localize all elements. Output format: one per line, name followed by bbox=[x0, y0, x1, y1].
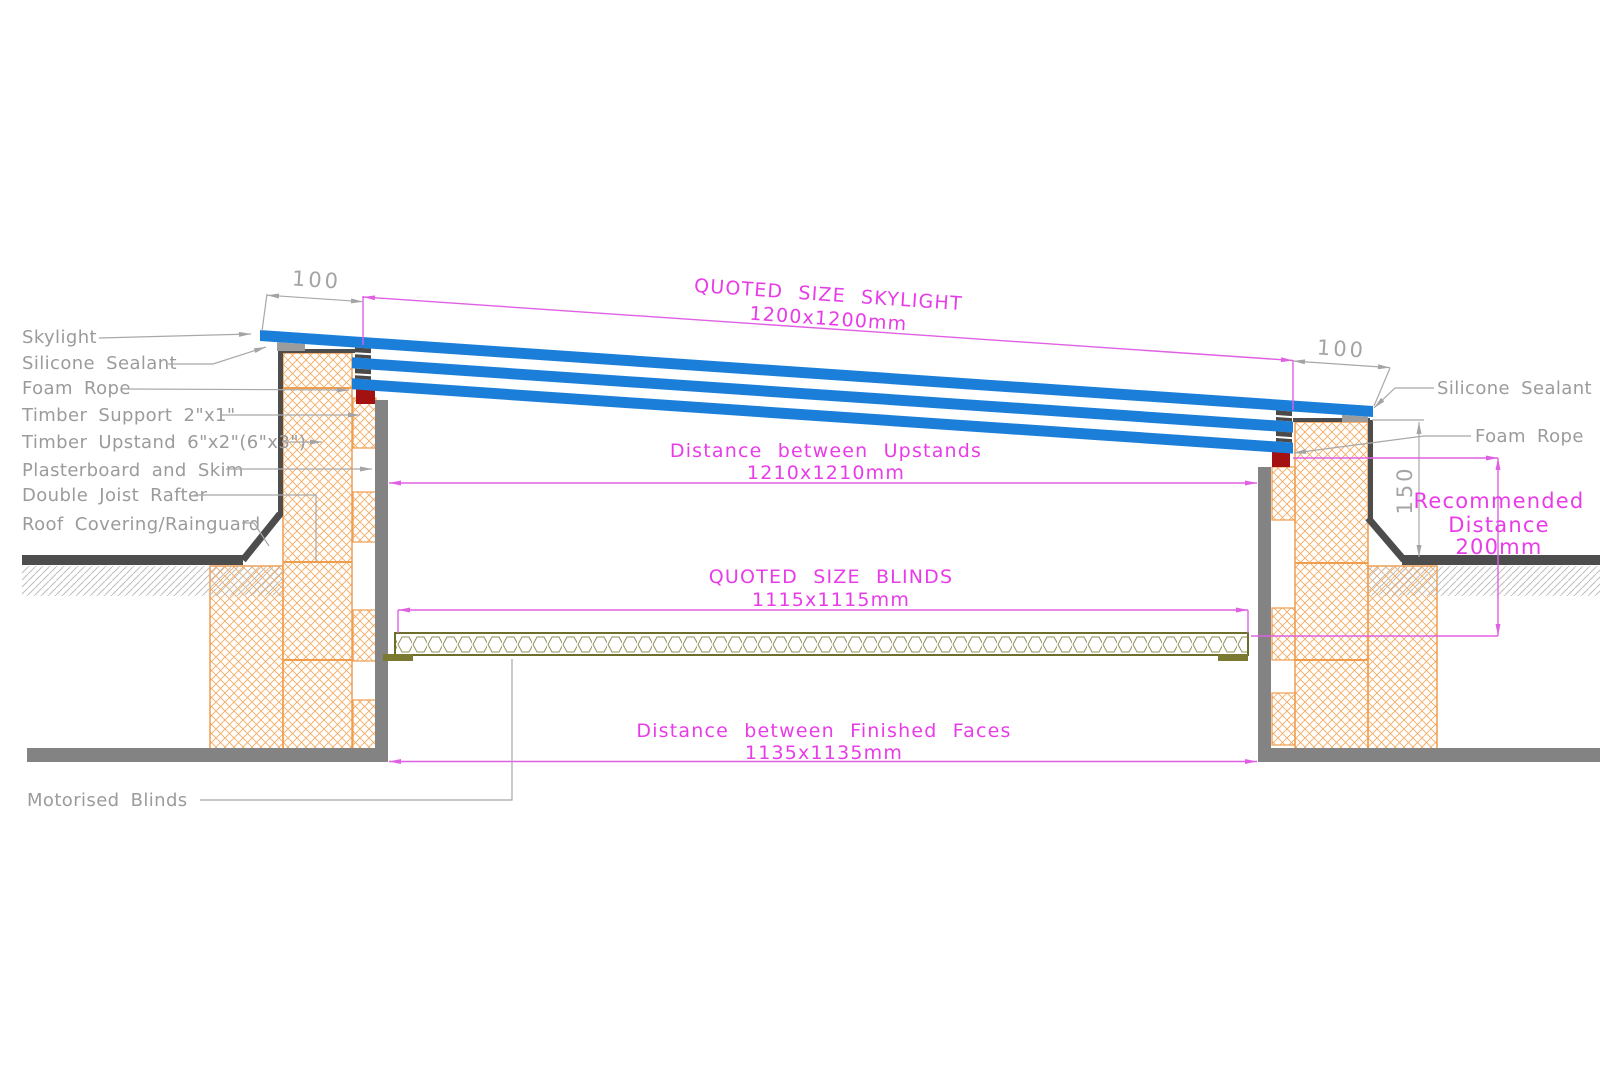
left-roof-deck-hatch bbox=[22, 566, 283, 596]
dim-recommended-line1: Recommended bbox=[1414, 489, 1585, 513]
label-plasterboard: Plasterboard and Skim bbox=[22, 460, 244, 481]
blinds-right-bracket bbox=[1218, 654, 1248, 661]
right-roof-covering-slope bbox=[1368, 518, 1404, 560]
right-roof-deck-hatch bbox=[1368, 566, 1600, 596]
skylight-section-drawing: QUOTED SIZE SKYLIGHT 1200x1200mm 100 100… bbox=[0, 0, 1600, 1068]
left-ceiling bbox=[27, 748, 388, 762]
dim-line bbox=[267, 295, 363, 302]
label-roof-covering: Roof Covering/Rainguard bbox=[22, 514, 261, 535]
dim-line bbox=[1293, 361, 1390, 368]
label-double-joist: Double Joist Rafter bbox=[22, 485, 207, 506]
spacer-detail bbox=[355, 353, 371, 354]
left-plasterboard bbox=[375, 400, 388, 750]
leader-skylight bbox=[99, 334, 251, 338]
blinds-left-bracket bbox=[383, 654, 413, 661]
spacer-detail bbox=[1276, 437, 1292, 438]
dim-blinds-title: QUOTED SIZE BLINDS bbox=[709, 566, 954, 588]
dim-distance-between-upstands: Distance between Upstands 1210x1210mm bbox=[389, 440, 1257, 484]
dim-upstands-title: Distance between Upstands bbox=[670, 440, 982, 462]
dim-recommended-line3: 200mm bbox=[1456, 535, 1543, 559]
dim-distance-finished-faces: Distance between Finished Faces 1135x113… bbox=[389, 720, 1257, 764]
spacer-detail bbox=[1276, 416, 1292, 417]
dim-overhang-left-value: 100 bbox=[291, 266, 342, 293]
dim-upstands-size: 1210x1210mm bbox=[747, 462, 905, 484]
motorised-blinds-unit bbox=[383, 633, 1248, 661]
blinds-honeycomb bbox=[395, 633, 1248, 655]
label-timber-upstand: Timber Upstand 6"x2"(6"x3") bbox=[21, 432, 306, 453]
dim-overhang-left: 100 bbox=[262, 266, 363, 331]
left-timber-support-block bbox=[353, 398, 376, 448]
label-silicone-sealant-right: Silicone Sealant bbox=[1437, 378, 1592, 399]
label-silicone-sealant-left: Silicone Sealant bbox=[22, 353, 177, 374]
right-foam-rope bbox=[1272, 452, 1290, 467]
label-timber-support: Timber Support 2"x1" bbox=[21, 405, 236, 426]
dim-faces-title: Distance between Finished Faces bbox=[636, 720, 1011, 742]
dim-quoted-size-blinds: QUOTED SIZE BLINDS 1115x1115mm bbox=[398, 566, 1248, 633]
left-roof-covering bbox=[22, 555, 243, 565]
left-timber-support-block bbox=[353, 610, 376, 661]
left-timber-support-block bbox=[353, 492, 376, 542]
right-plasterboard bbox=[1258, 467, 1271, 750]
dim-recommended-line2: Distance bbox=[1448, 513, 1549, 537]
right-ceiling bbox=[1258, 748, 1600, 762]
section-canvas: QUOTED SIZE SKYLIGHT 1200x1200mm 100 100… bbox=[0, 0, 1600, 1068]
label-motorised-blinds: Motorised Blinds bbox=[27, 790, 188, 811]
leader-silicone-right bbox=[1374, 388, 1434, 408]
label-foam-rope-right: Foam Rope bbox=[1475, 426, 1584, 447]
left-foam-rope bbox=[356, 389, 375, 404]
left-timber-upstand bbox=[283, 353, 352, 750]
spacer-detail bbox=[355, 374, 371, 375]
dim-overhang-right-value: 100 bbox=[1316, 335, 1367, 362]
right-timber-support-block bbox=[1272, 693, 1295, 745]
label-foam-rope-left: Foam Rope bbox=[22, 378, 131, 399]
right-timber-upstand bbox=[1295, 422, 1368, 750]
dim-overhang-right: 100 bbox=[1293, 335, 1390, 406]
glazing-pane-outer bbox=[260, 330, 1373, 417]
right-wall-assembly bbox=[1258, 415, 1600, 762]
dim-faces-size: 1135x1135mm bbox=[745, 742, 903, 764]
label-skylight: Skylight bbox=[22, 327, 97, 348]
dim-extension bbox=[262, 294, 267, 331]
right-timber-support-block bbox=[1272, 467, 1295, 520]
dim-blinds-size: 1115x1115mm bbox=[752, 589, 910, 611]
left-timber-support-block bbox=[353, 700, 376, 750]
right-timber-support-block bbox=[1272, 608, 1295, 660]
skylight-glazing bbox=[260, 330, 1373, 454]
leader-silicone-left bbox=[168, 347, 266, 364]
